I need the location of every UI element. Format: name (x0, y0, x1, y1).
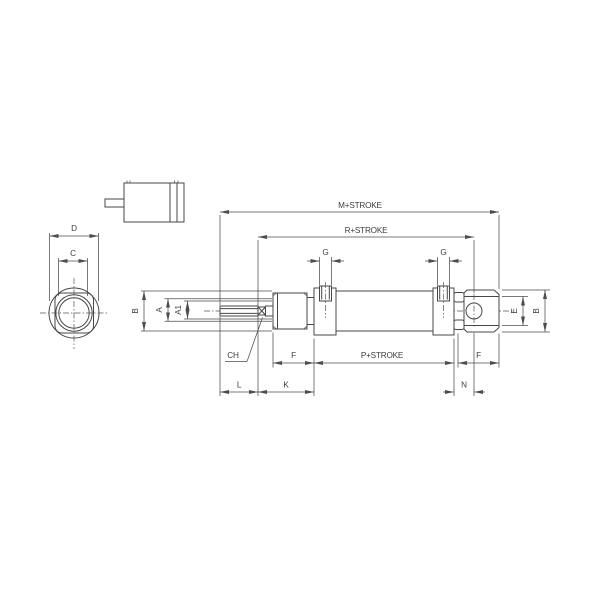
dim-ch: CH (225, 318, 263, 362)
dim-label-n: N (461, 381, 467, 390)
dim-g-rear: G (425, 248, 462, 285)
top-view (105, 181, 184, 223)
dim-f-left: F (273, 333, 314, 397)
dim-label-m-stroke: M+STROKE (338, 201, 382, 210)
rod-shoulder (266, 306, 274, 316)
dim-label-f-left: F (291, 351, 296, 360)
dim-label-c: C (70, 249, 76, 258)
front-view: D C (40, 224, 108, 349)
dim-label-p-stroke: P+STROKE (361, 351, 404, 360)
dim-label-l: L (237, 381, 242, 390)
dim-label-b-right: B (532, 308, 541, 314)
rod-wrench-flats (258, 307, 266, 315)
dim-l: L (220, 317, 258, 396)
dim-label-a1: A1 (174, 305, 183, 315)
dim-c: C (59, 249, 88, 296)
top-view-rod (105, 199, 124, 207)
front-nose (273, 293, 307, 329)
dim-label-k: K (283, 381, 289, 390)
piston-rod (220, 306, 258, 316)
dim-label-r-stroke: R+STROKE (345, 226, 388, 235)
dim-label-b-left: B (131, 308, 140, 314)
eye-neck-bottom (454, 320, 464, 330)
dim-p-stroke: P+STROKE (314, 339, 454, 397)
dim-m-stroke: M+STROKE (220, 201, 499, 305)
side-view (204, 282, 513, 335)
cylinder-drawing: D C (0, 0, 600, 600)
dim-label-d: D (71, 224, 77, 233)
dim-g-front: G (307, 248, 344, 285)
drawing-canvas: D C (0, 0, 600, 600)
dim-label-e: E (510, 308, 519, 314)
dim-d: D (50, 224, 99, 301)
cylinder-tube (336, 291, 433, 331)
top-view-body (124, 183, 184, 222)
nose-neck (307, 298, 314, 325)
dim-n: N (443, 333, 485, 396)
dim-label-ch: CH (227, 351, 239, 360)
dim-label-g-rear: G (440, 248, 446, 257)
dim-label-a: A (155, 307, 164, 313)
eye-neck-top (454, 293, 464, 303)
dim-f-right: F (458, 334, 499, 368)
dim-label-f-right: F (476, 351, 481, 360)
dim-label-g-front: G (322, 248, 328, 257)
